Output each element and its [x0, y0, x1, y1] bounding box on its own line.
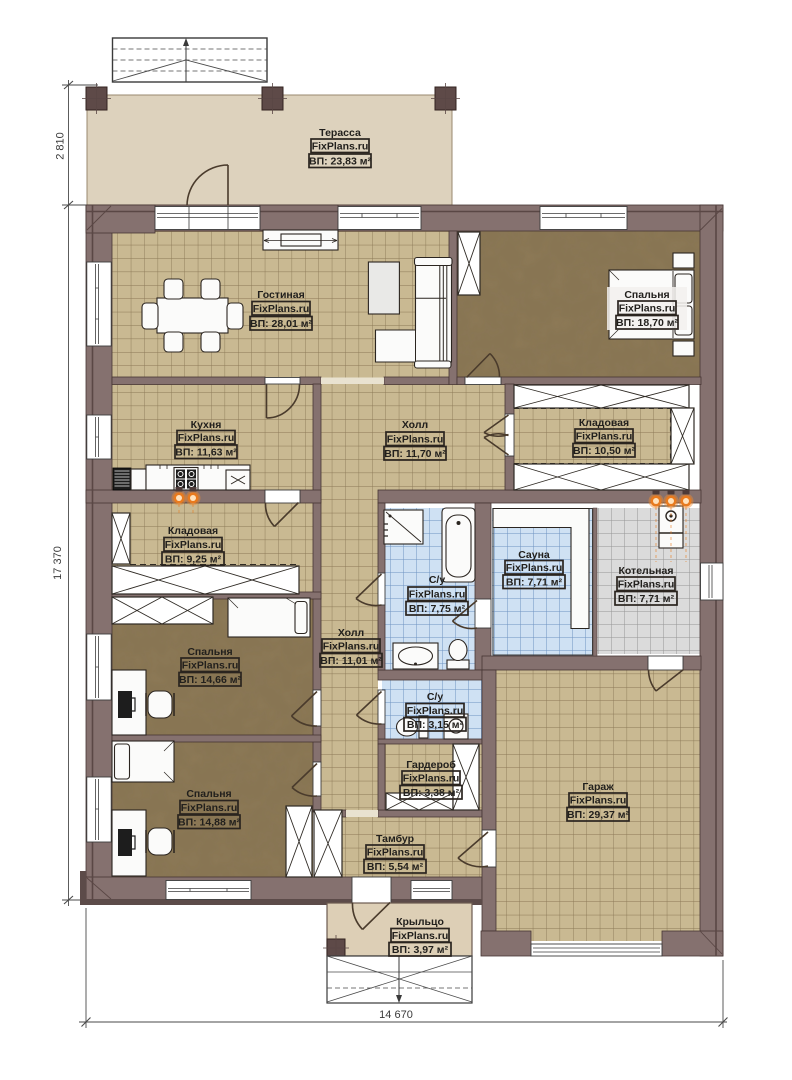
svg-text:ВП: 11,63 м²: ВП: 11,63 м² — [175, 447, 237, 459]
svg-text:2 810: 2 810 — [55, 132, 67, 160]
svg-text:Холл: Холл — [402, 419, 428, 431]
svg-text:FixPlans.ru: FixPlans.ru — [506, 562, 563, 574]
svg-text:FixPlans.ru: FixPlans.ru — [570, 795, 627, 807]
svg-text:Холл: Холл — [338, 627, 364, 639]
svg-text:FixPlans.ru: FixPlans.ru — [181, 802, 238, 814]
svg-text:ВП: 3,38 м²: ВП: 3,38 м² — [403, 787, 460, 799]
svg-text:Тамбур: Тамбур — [376, 833, 414, 845]
svg-text:Кладовая: Кладовая — [168, 525, 218, 537]
svg-text:ВП: 28,01 м²: ВП: 28,01 м² — [250, 318, 313, 330]
svg-text:FixPlans.ru: FixPlans.ru — [409, 589, 466, 601]
svg-text:ВП: 11,01 м²: ВП: 11,01 м² — [320, 655, 382, 667]
svg-text:FixPlans.ru: FixPlans.ru — [178, 432, 235, 444]
svg-text:ВП: 29,37 м²: ВП: 29,37 м² — [567, 809, 630, 821]
svg-text:FixPlans.ru: FixPlans.ru — [403, 773, 460, 785]
svg-text:Спальня: Спальня — [186, 788, 231, 800]
svg-text:ВП: 10,50 м²: ВП: 10,50 м² — [573, 445, 636, 457]
svg-text:Кухня: Кухня — [191, 419, 222, 431]
svg-text:FixPlans.ru: FixPlans.ru — [323, 641, 380, 653]
svg-text:ВП: 7,71 м²: ВП: 7,71 м² — [618, 593, 675, 605]
svg-text:FixPlans.ru: FixPlans.ru — [253, 303, 310, 315]
svg-text:FixPlans.ru: FixPlans.ru — [367, 847, 424, 859]
svg-text:FixPlans.ru: FixPlans.ru — [182, 660, 239, 672]
svg-text:ВП: 11,70 м²: ВП: 11,70 м² — [384, 448, 446, 460]
svg-text:17 370: 17 370 — [52, 546, 64, 580]
svg-text:ВП: 18,70 м²: ВП: 18,70 м² — [616, 317, 679, 329]
svg-text:Гараж: Гараж — [582, 781, 614, 793]
svg-text:FixPlans.ru: FixPlans.ru — [387, 434, 444, 446]
svg-text:Терасса: Терасса — [319, 127, 361, 139]
svg-text:FixPlans.ru: FixPlans.ru — [312, 141, 369, 153]
svg-text:ВП: 14,88 м²: ВП: 14,88 м² — [178, 817, 241, 829]
svg-text:ВП: 7,71 м²: ВП: 7,71 м² — [506, 577, 563, 589]
svg-text:ВП: 3,15 м²: ВП: 3,15 м² — [407, 719, 464, 731]
svg-text:FixPlans.ru: FixPlans.ru — [392, 930, 449, 942]
svg-text:Гостиная: Гостиная — [257, 289, 304, 301]
svg-text:Гардероб: Гардероб — [406, 759, 456, 771]
svg-text:ВП: 23,83 м²: ВП: 23,83 м² — [309, 156, 372, 168]
svg-text:ВП: 9,25 м²: ВП: 9,25 м² — [165, 554, 222, 566]
svg-text:FixPlans.ru: FixPlans.ru — [618, 579, 675, 591]
svg-text:С/у: С/у — [427, 691, 444, 703]
svg-text:Кладовая: Кладовая — [579, 417, 629, 429]
svg-text:ВП: 7,75 м²: ВП: 7,75 м² — [409, 603, 466, 615]
svg-text:ВП: 3,97 м²: ВП: 3,97 м² — [392, 944, 449, 956]
svg-text:ВП: 5,54 м²: ВП: 5,54 м² — [367, 861, 424, 873]
svg-text:Спальня: Спальня — [624, 289, 669, 301]
svg-text:FixPlans.ru: FixPlans.ru — [619, 303, 676, 315]
svg-text:Спальня: Спальня — [187, 646, 232, 658]
svg-text:FixPlans.ru: FixPlans.ru — [576, 431, 633, 443]
svg-text:FixPlans.ru: FixPlans.ru — [407, 705, 464, 717]
svg-text:Крыльцо: Крыльцо — [396, 916, 444, 928]
svg-text:ВП: 14,66 м²: ВП: 14,66 м² — [179, 674, 242, 686]
svg-text:Котельная: Котельная — [619, 565, 674, 577]
svg-text:FixPlans.ru: FixPlans.ru — [165, 539, 222, 551]
svg-text:Сауна: Сауна — [518, 549, 550, 561]
svg-text:С/у: С/у — [429, 574, 446, 586]
svg-text:14 670: 14 670 — [379, 1009, 413, 1021]
